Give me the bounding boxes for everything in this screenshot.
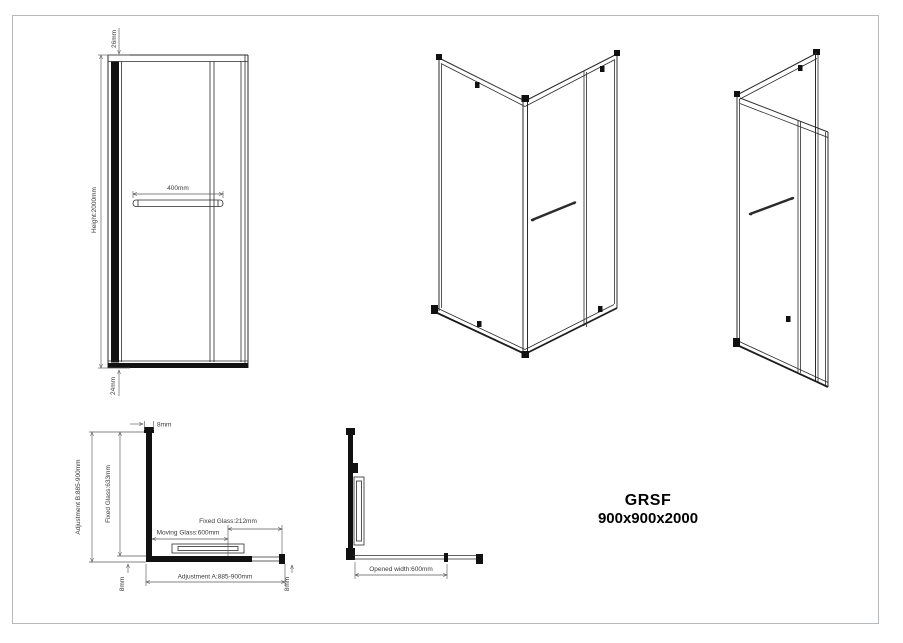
towel-bar	[133, 200, 223, 207]
iso2-return-panel	[734, 49, 820, 382]
front-dimensions: 400mm Height:2000mm 26mm 24mm	[91, 28, 223, 396]
fixed-glass-b-label: Fixed Glass:633mm	[105, 465, 112, 523]
iso2-door-handle	[750, 197, 794, 215]
bottom-offset-label: 24mm	[110, 377, 117, 395]
front-frame	[108, 55, 248, 368]
iso2-front-panel	[733, 98, 828, 387]
iso-corner-post	[522, 95, 530, 358]
moving-glass-label: Moving Glass:600mm	[157, 530, 220, 537]
title-block: GRSF 900x900x2000	[548, 492, 748, 527]
top-thickness-label: 8mm	[157, 422, 171, 429]
fixed-glass-a-label: Fixed Glass:212mm	[199, 518, 257, 525]
iso-left-panel	[431, 54, 525, 354]
adjustment-b-label: Adjustment B:885-900mm	[75, 459, 82, 534]
handle-width-label: 400mm	[167, 185, 189, 192]
isometric-view-closed	[420, 30, 650, 370]
plan-profiles	[144, 427, 285, 564]
plan-view-open: Opened width:600mm	[320, 415, 510, 600]
front-elevation-view: 400mm Height:2000mm 26mm 24mm	[60, 10, 280, 410]
plan-dimensions: Adjustment B:885-900mm Fixed Glass:633mm…	[75, 421, 292, 591]
adjustment-a-label: Adjustment A:885-900mm	[178, 574, 253, 581]
plan-view-closed: Adjustment B:885-900mm Fixed Glass:633mm…	[60, 410, 300, 610]
drawing-sheet: 400mm Height:2000mm 26mm 24mm	[0, 0, 903, 643]
iso-right-panel	[525, 50, 620, 354]
height-label: Height:2000mm	[91, 187, 98, 233]
plan2-profiles	[346, 428, 483, 564]
opened-width-label: Opened width:600mm	[369, 566, 433, 573]
isometric-view-open	[720, 40, 855, 410]
left-thickness-label: 8mm	[119, 577, 126, 591]
model-name: GRSF	[548, 492, 748, 510]
iso-door-handle	[532, 202, 576, 222]
right-thickness-label: 8mm	[284, 577, 291, 591]
iso2-hinge-blocks	[786, 65, 803, 322]
plan-moving-glass	[172, 544, 244, 553]
top-offset-label: 26mm	[111, 30, 118, 48]
model-size: 900x900x2000	[548, 510, 748, 527]
iso-hinge-blocks	[475, 66, 605, 327]
plan2-dimensions: Opened width:600mm	[355, 562, 447, 579]
plan2-open-door	[354, 477, 364, 545]
